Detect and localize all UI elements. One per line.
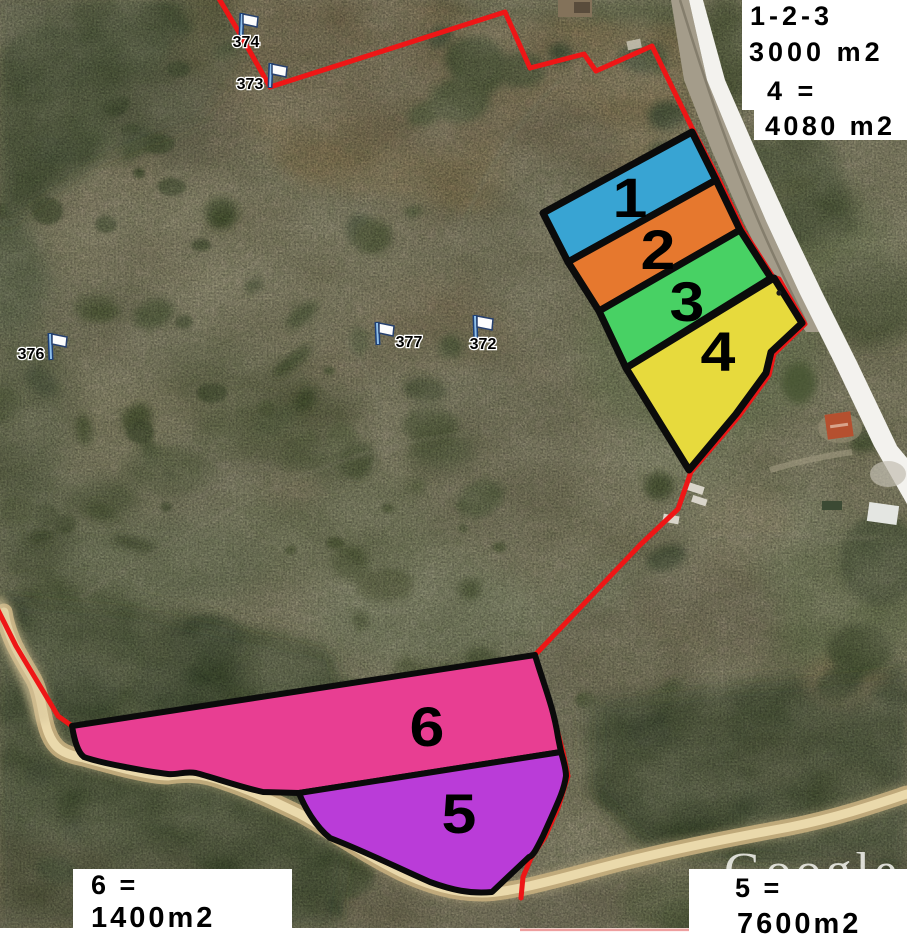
svg-text:374: 374 xyxy=(233,34,260,51)
svg-text:6 =: 6 = xyxy=(91,870,138,900)
svg-text:372: 372 xyxy=(470,336,497,353)
svg-text:4 =: 4 = xyxy=(767,76,817,106)
svg-text:376: 376 xyxy=(18,346,45,363)
svg-text:7600m2: 7600m2 xyxy=(737,908,861,935)
svg-text:6: 6 xyxy=(410,695,445,758)
svg-text:5 =: 5 = xyxy=(735,873,782,903)
svg-text:1-2-3: 1-2-3 xyxy=(750,1,833,31)
svg-text:3000 m2: 3000 m2 xyxy=(749,37,884,67)
svg-text:5: 5 xyxy=(442,782,477,845)
svg-text:4080 m2: 4080 m2 xyxy=(765,111,895,141)
svg-text:373: 373 xyxy=(237,76,264,93)
svg-text:377: 377 xyxy=(396,334,423,351)
svg-text:4: 4 xyxy=(701,320,736,383)
svg-text:1400m2: 1400m2 xyxy=(91,902,215,934)
svg-text:3: 3 xyxy=(670,270,705,333)
